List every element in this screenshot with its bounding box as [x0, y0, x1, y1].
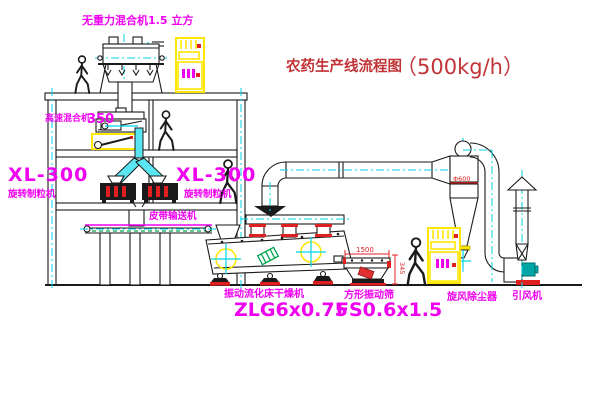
diagram-title-capacity: （500kg/h）: [396, 55, 524, 79]
granulator-left-name: 旋转制粒机: [7, 188, 56, 200]
sieve-model-label: FS0.6x1.5: [336, 299, 442, 321]
mixer350-label: 高速混合机: [45, 112, 90, 124]
stack-cap: [508, 177, 536, 190]
indicator-dot: [452, 263, 456, 267]
second-floor-slab: [56, 150, 237, 157]
dust-collector-cabinet-bottom: [428, 228, 460, 283]
top-floor-slab: [45, 93, 247, 100]
indicator-dot: [196, 73, 200, 77]
third-floor-slab: [56, 203, 237, 210]
cad-drawing: Φ600: [0, 0, 600, 403]
vortex-finder: [455, 141, 471, 157]
support-column: [160, 233, 170, 285]
duct-elbow: [262, 162, 286, 186]
indicator-dot: [454, 234, 458, 238]
fan-label: 引风机: [512, 289, 542, 302]
granulator-right-model: XL-300: [176, 164, 256, 186]
person-figure: [408, 238, 426, 285]
belt-conveyor-label: 皮带输送机: [148, 210, 197, 222]
mixer350-value: 350: [87, 112, 114, 127]
square-vibrating-sieve: 1500 345: [334, 246, 406, 286]
dust-collector-cabinet-top: [176, 38, 204, 92]
granulator-right-name: 旋转制粒机: [183, 188, 232, 200]
belt-conveyor: [80, 225, 216, 285]
diagram-title: 农药生产线流程图: [285, 57, 402, 75]
mixer-discharge-chute: [135, 128, 143, 158]
support-column: [130, 233, 140, 285]
person-figure: [75, 56, 89, 93]
drop-duct: [129, 210, 144, 226]
fluid-bed-dryer: [206, 206, 352, 286]
dryer-model-label: ZLG6x0.75: [234, 299, 348, 321]
fan-base: [516, 280, 540, 285]
cyclone-diameter-label: Φ600: [453, 175, 471, 183]
granulator-left-model: XL-300: [8, 164, 88, 186]
process-flow-diagram: Φ600: [0, 0, 600, 403]
person-figure: [159, 111, 174, 150]
indicator-dot: [197, 44, 201, 48]
gravity-mixer-label: 无重力混合机1.5 立方: [81, 13, 193, 27]
sieve-length-dim: 1500: [356, 246, 374, 254]
support-column: [100, 233, 110, 285]
exhaust-duct: [262, 156, 461, 214]
cyclone-label: 旋风除尘器: [446, 290, 498, 303]
sieve-height-dim: 345: [398, 262, 406, 274]
